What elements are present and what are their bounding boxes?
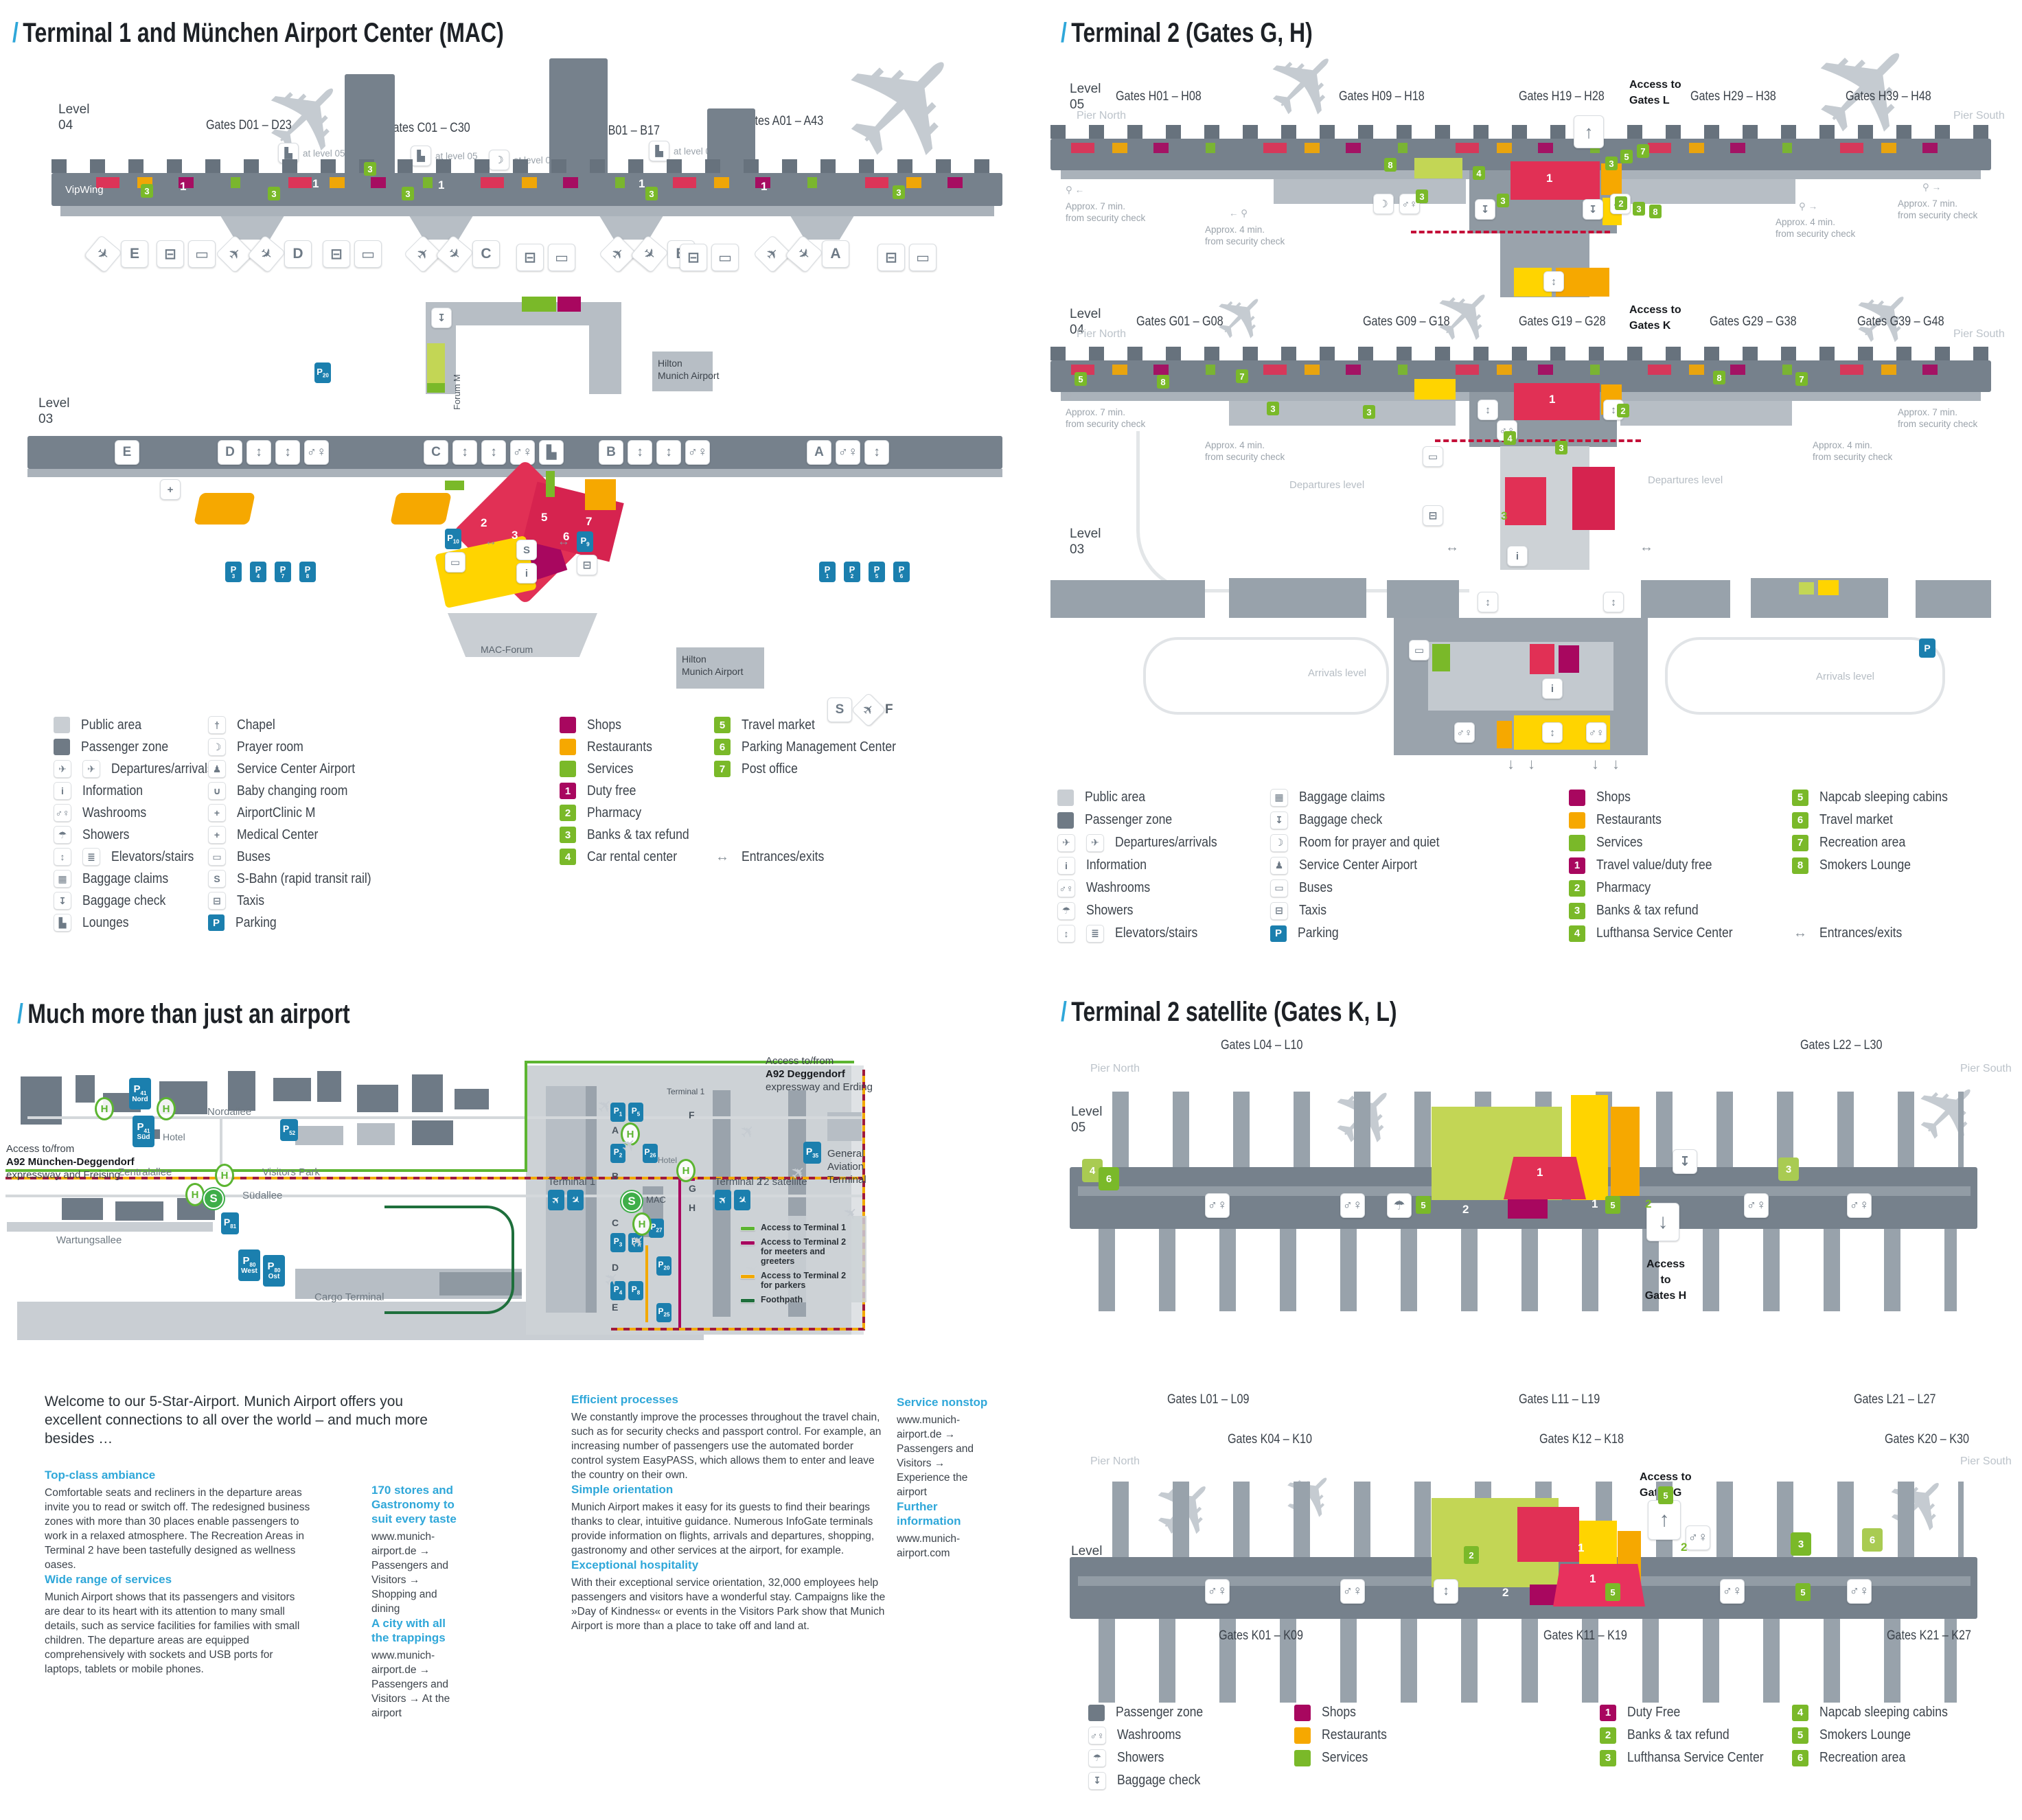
gate-range-label: Gates G09 – G18 <box>1363 314 1450 330</box>
cargo-terminal-label: Cargo Terminal <box>314 1291 384 1303</box>
parking-badge-p10: P10 <box>445 529 461 549</box>
legend-label: Baby changing room <box>237 783 347 799</box>
route-color-swatch <box>740 1226 755 1231</box>
access-up-arrow-icon: ↑ <box>1648 1500 1681 1540</box>
washrooms-icon: ♂♀ <box>1205 1579 1230 1604</box>
building-block <box>273 1078 311 1101</box>
legend-key-icon: ↕ <box>1057 925 1075 943</box>
legend-key-icon <box>54 739 70 755</box>
elevator-icon: ↕ <box>628 440 652 465</box>
area-e-group: ✈E <box>89 240 148 268</box>
washrooms-icon: ♂♀ <box>1686 1525 1710 1550</box>
legend-key-icon: 6 <box>1792 1750 1808 1766</box>
legend-label: Buses <box>237 849 271 865</box>
area-d-group: ✈✈D <box>221 240 312 268</box>
map-badge: 3 <box>893 185 905 199</box>
legend-row: ⊟Taxis <box>1270 899 1458 922</box>
legend-row: ▦Baggage claims <box>1270 786 1458 809</box>
departures-level-label: Departures level <box>1648 474 1723 486</box>
map-badge: 3 <box>1633 202 1645 216</box>
legend-label: Baggage check <box>82 893 165 909</box>
legend-key-icon: ≣ <box>82 848 100 866</box>
sbahn-station-marker: S <box>621 1191 642 1212</box>
legend-row: 5Travel market <box>714 714 917 736</box>
section-letter: D <box>218 440 242 465</box>
bus-icon: ▭ <box>354 240 382 268</box>
walker-icon: ⚲ → <box>1922 181 1941 193</box>
nordallee-label: Nordallee <box>207 1106 251 1118</box>
legend-row: Access to Terminal 1 <box>740 1223 858 1232</box>
text-block: A city with all the trappingswww.munich-… <box>371 1616 461 1720</box>
shops-block <box>1505 477 1546 525</box>
taxi-icon: ⊟ <box>680 244 707 271</box>
legend-row: 1Duty Free <box>1600 1701 1782 1724</box>
map-badge: 3 <box>1791 1532 1811 1556</box>
pier-south-label: Pier South <box>1960 1455 2012 1468</box>
legend-row: Shops <box>1294 1701 1396 1724</box>
legend-label: Shops <box>1596 790 1631 805</box>
building-block <box>412 1074 443 1112</box>
text-paragraph: Munich Airport makes it easy for its gue… <box>571 1500 887 1558</box>
legend-row: ♟Service Center Airport <box>208 758 389 780</box>
legend-label: Smokers Lounge <box>1819 857 1911 873</box>
parkers-route <box>645 1245 648 1322</box>
legend-row: ☂Showers <box>1057 899 1231 922</box>
map-badge: 3 <box>1501 509 1507 523</box>
visitors-park-label: Visitors Park <box>262 1166 320 1178</box>
legend-key-icon: ☽ <box>1270 834 1288 852</box>
legend-row: ☂Showers <box>1088 1747 1215 1769</box>
section-letter: E <box>115 440 139 465</box>
arrivals-icon: ✈ <box>568 1193 582 1207</box>
t1-pier-stem <box>549 58 608 175</box>
terminal1-small-label: Terminal 1 <box>667 1087 704 1096</box>
text-block: Exceptional hospitalityWith their except… <box>571 1558 887 1633</box>
gate-range-label: Gates K12 – K18 <box>1539 1432 1624 1447</box>
bus-icon: ▭ <box>188 240 216 268</box>
information-icon: i <box>516 563 537 584</box>
legend-row: ▭Buses <box>208 846 389 868</box>
t1-legend-col4: 5Travel market6Parking Management Center… <box>714 714 917 780</box>
legend-label: Restaurants <box>587 739 652 755</box>
legend-row: 6Travel market <box>1792 809 1965 831</box>
text-heading: Further information <box>897 1499 989 1528</box>
bus-icon: ▭ <box>548 244 575 271</box>
legend-label: Departures/arrivals <box>111 761 214 777</box>
shops-block <box>1553 1564 1645 1606</box>
legend-row: ↧Baggage check <box>54 890 227 912</box>
text-heading: A city with all the trappings <box>371 1616 461 1645</box>
t2-l03-level-label: Level03 <box>1070 526 1101 557</box>
map-badge: 8 <box>1713 371 1725 384</box>
legend-row: ♂♀Washrooms <box>1088 1724 1215 1747</box>
taxi-bus-group: ⊟▭ <box>516 244 575 271</box>
legend-row: 5Smokers Lounge <box>1792 1724 1965 1747</box>
washrooms-icon: ♂♀ <box>1340 1579 1365 1604</box>
bus-icon: ▭ <box>909 244 937 271</box>
arrivals-icon: ✈ <box>630 235 669 273</box>
foothpath-loop <box>384 1206 514 1314</box>
taxi-icon: ⊟ <box>577 555 597 575</box>
legend-key-icon: 2 <box>1600 1727 1616 1744</box>
services-block <box>427 343 445 383</box>
t1-legend-col3: ShopsRestaurantsServices1Duty free2Pharm… <box>560 714 703 868</box>
map-badge: 1 <box>1549 393 1555 406</box>
legend-label: Showers <box>1086 903 1133 919</box>
map-badge: 3 <box>402 187 414 200</box>
legend-label: Public area <box>1085 790 1145 805</box>
legend-row: ♟Service Center Airport <box>1270 854 1458 877</box>
elevator-icon: ↕ <box>1434 1579 1458 1604</box>
text-heading: Service nonstop <box>897 1395 989 1409</box>
map-badge: 5 <box>1620 150 1633 163</box>
legend-key-icon: i <box>1057 857 1075 875</box>
t2-l05-arm <box>1620 179 1795 204</box>
area-letter: C <box>612 1217 619 1228</box>
legend-key-icon: 3 <box>560 827 576 843</box>
pier-south-label: Pier South <box>1953 328 2005 341</box>
route-color-swatch <box>740 1298 755 1303</box>
legend-label: Chapel <box>237 717 275 733</box>
map-badge: 1 <box>1546 172 1552 185</box>
elevator-icon: ↕ <box>1603 592 1624 612</box>
legend-label: Washrooms <box>82 805 146 821</box>
hilton-label: HiltonMunich Airport <box>658 357 719 382</box>
legend-key-icon: 6 <box>714 739 731 755</box>
security-note: Approx. 4 min.from security check <box>1813 439 1892 463</box>
gate-range-label: Gates K21 – K27 <box>1887 1628 1971 1644</box>
legend-row: SS-Bahn (rapid transit rail) <box>208 868 389 890</box>
area-letter: H <box>689 1202 696 1213</box>
exit-arrow-icon: ↓ <box>1612 755 1620 773</box>
bus-icon: ▭ <box>711 244 739 271</box>
gate-range-label: Gates L04 – L10 <box>1221 1038 1302 1053</box>
map-badge: 3 <box>268 187 280 200</box>
washrooms-icon: ♂♀ <box>1205 1193 1230 1218</box>
mac-label: MAC <box>646 1195 666 1205</box>
map-badge: 5 <box>1605 1583 1620 1601</box>
legend-row: iInformation <box>1057 854 1231 877</box>
legend-key-icon: 2 <box>560 805 576 821</box>
legend-key-icon: 7 <box>714 761 731 777</box>
legend-label: Post office <box>742 761 798 777</box>
legend-row: 8Smokers Lounge <box>1792 854 1965 877</box>
washrooms-icon: ♂♀ <box>685 440 710 465</box>
parking-badge-p41-nord: P41Nord <box>129 1078 151 1109</box>
legend-key-icon: ▦ <box>1270 789 1288 807</box>
legend-key-icon <box>1057 790 1074 806</box>
terminal1-label: Terminal 1 <box>548 1176 595 1188</box>
t2-access-route <box>611 1328 864 1331</box>
elevator-icon: ↕ <box>1478 592 1498 612</box>
legend-key-icon: ✈ <box>82 760 100 778</box>
legend-key-icon: ✈ <box>1086 834 1104 852</box>
gate-range-label: Gates L11 – L19 <box>1519 1392 1600 1407</box>
elevator-icon: ↕ <box>1543 271 1564 292</box>
stairs-icon: ↕ <box>275 440 300 465</box>
restaurants-block <box>1414 379 1456 400</box>
shower-icon: ☂ <box>1387 1193 1412 1218</box>
title-slash-icon: / <box>17 999 23 1029</box>
building-block <box>115 1201 163 1221</box>
legend-key-icon: ↧ <box>1270 811 1288 829</box>
mac-forum-label: MAC-Forum <box>481 644 533 655</box>
shops-block <box>1510 161 1600 200</box>
general-aviation-terminal-label: GeneralAviationTerminal <box>827 1147 866 1186</box>
legend-key-icon: ∪ <box>208 782 226 800</box>
legend-label: Parking Management Center <box>742 739 896 755</box>
legend-row: PParking <box>1270 922 1458 945</box>
map-badge: 3 <box>1416 189 1428 203</box>
information-icon: i <box>1507 546 1528 566</box>
baggage-check-icon: ↧ <box>1475 199 1495 220</box>
t2-legend-col1: Public areaPassenger zone✈✈Departures/ar… <box>1057 786 1231 945</box>
legend-row: ✈✈Departures/arrivals <box>54 758 227 780</box>
t2-l04-retail-strip <box>1071 365 1971 375</box>
taxi-icon: ⊟ <box>1423 505 1443 526</box>
legend-row: 4Car rental center <box>560 846 703 868</box>
legend-row: ↧Baggage check <box>1270 809 1458 831</box>
legend-label: Elevators/stairs <box>111 849 194 865</box>
pier-south-label: Pier South <box>1953 110 2005 122</box>
parking-badge-p5: P5 <box>628 1103 643 1122</box>
shops-block <box>1530 644 1554 674</box>
legend-label: Travel value/duty free <box>1596 857 1712 873</box>
legend-row: Public area <box>54 714 227 736</box>
parking-badge-p41-sued: P41Süd <box>133 1116 154 1147</box>
gate-range-label: Gates G29 – G38 <box>1710 314 1797 330</box>
text-paragraph: www.munich-airport.de → Passengers and V… <box>371 1648 461 1720</box>
map-badge: 3 <box>1497 194 1509 207</box>
taxi-bus-group: ⊟▭ <box>680 244 739 271</box>
map-badge: 1 <box>639 177 645 191</box>
washrooms-icon: ♂♀ <box>510 440 535 465</box>
legend-label: Lufthansa Service Center <box>1627 1750 1764 1766</box>
exit-arrow-icon: ↓ <box>1592 755 1599 773</box>
legend-row: 7Recreation area <box>1792 831 1965 854</box>
legend-key-icon: ↕ <box>54 848 71 866</box>
parking-badge-p81: P81 <box>221 1212 239 1234</box>
entrances-icon: ↔ <box>714 849 731 865</box>
gate-range-label: Gates K04 – K10 <box>1228 1432 1312 1447</box>
arrivals-icon: ✈ <box>247 235 286 273</box>
legend-key-icon <box>1569 812 1585 829</box>
legend-label: Parking <box>1298 925 1339 941</box>
map-badge: 5 <box>1416 1196 1431 1214</box>
text-block: Simple orientationMunich Airport makes i… <box>571 1482 887 1558</box>
legend-row: ▙Lounges <box>54 912 227 934</box>
legend-key-icon: ✈ <box>1057 834 1075 852</box>
map-badge: 2 <box>1645 1197 1651 1211</box>
suedallee-label: Südallee <box>242 1190 282 1201</box>
security-note: Approx. 4 min.from security check <box>1205 439 1285 463</box>
shops-block <box>1504 1157 1586 1199</box>
restaurants-block <box>585 479 616 510</box>
text-heading: Top-class ambiance <box>45 1468 312 1482</box>
legend-label: Restaurants <box>1322 1727 1387 1743</box>
taxi-bus-group: ⊟▭ <box>157 240 216 268</box>
area-letter: C <box>472 240 500 268</box>
legend-key-icon: ↧ <box>1088 1772 1106 1790</box>
legend-label: Taxis <box>1299 903 1326 919</box>
legend-key-icon: 5 <box>1792 790 1808 806</box>
security-note: Approx. 7 min.from security check <box>1898 198 1977 221</box>
legend-key-icon: P <box>1270 925 1287 942</box>
legend-key-icon: i <box>54 782 71 800</box>
t1-waiting-area <box>402 216 481 240</box>
text-paragraph: Comfortable seats and recliners in the d… <box>45 1486 312 1572</box>
arrivals-level-label: Arrivals level <box>1308 667 1366 679</box>
gate-range-label: Gates H39 – H48 <box>1846 89 1931 104</box>
legend-row: Passenger zone <box>1057 809 1231 831</box>
map-badge: 2 <box>481 516 487 530</box>
building-block <box>412 1120 453 1145</box>
legend-label: Banks & tax refund <box>1596 903 1699 919</box>
t1-l04-retail-strip <box>96 177 989 188</box>
elevator-icon: ↕ <box>452 440 477 465</box>
map-badge: 4 <box>1473 166 1485 180</box>
welcome-heading: Welcome to our 5-Star-Airport. Munich Ai… <box>45 1392 457 1448</box>
legend-row: Public area <box>1057 786 1231 809</box>
services-block <box>522 297 556 312</box>
security-note: Approx. 4 min.from security check <box>1776 216 1855 240</box>
legend-key-icon: 5 <box>1792 1727 1808 1744</box>
legend-label: Banks & tax refund <box>1627 1727 1730 1743</box>
legend-key-icon <box>1569 835 1585 851</box>
meeters-route <box>678 1178 681 1328</box>
building-block <box>1229 578 1366 618</box>
services-block <box>427 383 445 393</box>
legend-row: ☽Room for prayer and quiet <box>1270 831 1458 854</box>
legend-key-icon: ↧ <box>54 892 71 910</box>
legend-key-icon: ♂♀ <box>1057 879 1075 897</box>
entrance-arrow-icon: ↔ <box>485 534 497 549</box>
text-column-2: 170 stores and Gastronomy to suit every … <box>371 1483 461 1720</box>
legend-row: ▦Baggage claims <box>54 868 227 890</box>
t1-waiting-area <box>592 216 671 240</box>
legend-key-icon: P <box>208 914 225 931</box>
legend-key-icon: S <box>208 870 226 888</box>
legend-label: Recreation area <box>1819 835 1905 851</box>
text-column-3: Efficient processesWe constantly improve… <box>571 1392 887 1633</box>
legend-label: Showers <box>1117 1750 1164 1766</box>
legend-row: Passenger zone <box>54 736 227 758</box>
security-note: Approx. 7 min.from security check <box>1066 200 1145 224</box>
map-badge: 1 <box>180 180 186 194</box>
legend-row: ☽Prayer room <box>208 736 389 758</box>
legend-label: Pharmacy <box>1596 880 1651 896</box>
arrivals-icon: ✈ <box>435 235 474 273</box>
elevator-icon: ↕ <box>1542 722 1563 743</box>
text-block: 170 stores and Gastronomy to suit every … <box>371 1483 461 1616</box>
legend-row: Services <box>560 758 703 780</box>
vipwing-label: VipWing <box>65 184 104 196</box>
legend-key-icon: ♟ <box>1270 857 1288 875</box>
taxi-icon: ⊟ <box>877 244 905 271</box>
legend-label: Room for prayer and quiet <box>1299 835 1439 851</box>
legend-label: Passenger zone <box>1085 812 1172 828</box>
parking-badge-p35: P35 <box>803 1142 821 1164</box>
security-note: Approx. 7 min.from security check <box>1066 406 1145 430</box>
terminal2-depart-arrive-icons: ✈ ✈ <box>715 1190 750 1210</box>
sat-l05-fingers-bottom <box>1099 1229 1957 1311</box>
gate-range-label: Gates L01 – L09 <box>1167 1392 1249 1407</box>
area-letter: E <box>121 240 148 268</box>
entrance-arrow-icon: ↔ <box>558 534 570 549</box>
legend-key-icon: ☂ <box>54 826 71 844</box>
legend-label: Parking <box>235 915 277 931</box>
building-block <box>317 1071 341 1102</box>
legend-key-icon: ♂♀ <box>54 804 71 822</box>
legend-label: Service Center Airport <box>237 761 355 777</box>
t1-waiting-area <box>213 216 292 240</box>
text-block: Top-class ambianceComfortable seats and … <box>45 1468 312 1572</box>
legend-label: Services <box>587 761 633 777</box>
legend-key-icon: 2 <box>1569 880 1585 897</box>
legend-label: Information <box>1086 857 1147 873</box>
sat-legend-col1: Passenger zone♂♀Washrooms☂Showers↧Baggag… <box>1088 1701 1215 1792</box>
legend-key-icon: 1 <box>1569 857 1585 874</box>
legend-label: Lounges <box>82 915 129 931</box>
hilton-label: HiltonMunich Airport <box>682 653 743 678</box>
map-badge: 3 <box>141 184 153 198</box>
legend-row: ▭Buses <box>1270 877 1458 899</box>
t1-l04-deck <box>60 206 994 216</box>
legend-label: Lufthansa Service Center <box>1596 925 1733 941</box>
legend-label: Baggage check <box>1117 1773 1200 1788</box>
pier-north-label: Pier North <box>1077 110 1126 122</box>
building-block <box>62 1198 103 1220</box>
legend-row: 2Pharmacy <box>560 802 703 824</box>
legend-label: Services <box>1596 835 1642 851</box>
forum-m-label: Forum M <box>452 374 462 410</box>
t1-parking-cluster-right: P1 P2 P5 P6 <box>819 562 910 582</box>
legend-key-icon: ☽ <box>208 738 226 756</box>
legend-key-icon: ▭ <box>208 848 226 866</box>
restaurants-block <box>1611 1107 1640 1196</box>
legend-key-icon: 3 <box>1569 903 1585 919</box>
t2-l04-arm <box>1229 401 1456 426</box>
t1-l04-level-label: Level04 <box>58 102 89 133</box>
at-level-05-badge: ▙at level 05 <box>649 141 716 161</box>
legend-key-icon: 1 <box>1600 1705 1616 1721</box>
map-badge: 5 <box>541 511 547 525</box>
legend-row: Restaurants <box>1569 809 1751 831</box>
a92-access-west-label: Access to/fromA92 München-Deggendorfexpr… <box>6 1142 135 1182</box>
legend-row: ✈✈Departures/arrivals <box>1057 831 1231 854</box>
map-badge: 8 <box>1157 375 1169 389</box>
security-note: Approx. 7 min.from security check <box>1898 406 1977 430</box>
legend-label: Passenger zone <box>81 739 168 755</box>
lounge-icon: ▙ <box>539 440 564 465</box>
area-letter: G <box>689 1183 696 1194</box>
bus-icon: ▭ <box>445 552 466 573</box>
legend-label: Access to Terminal 1 <box>761 1223 846 1232</box>
map-badge: 2 <box>1462 1203 1469 1217</box>
route-color-swatch <box>740 1241 755 1245</box>
hotel-label: Hotel <box>658 1155 677 1165</box>
legend-row: 6Recreation area <box>1792 1747 1965 1769</box>
t1-l04-gate-fingers <box>51 159 1002 173</box>
washrooms-icon: ♂♀ <box>836 440 860 465</box>
text-paragraph: We constantly improve the processes thro… <box>571 1410 887 1482</box>
text-block: Further informationwww.munich-airport.co… <box>897 1499 989 1560</box>
legend-key-icon: ▦ <box>54 870 71 888</box>
t2-l03-center-inner <box>1428 642 1613 711</box>
map-badge: 3 <box>364 162 376 176</box>
building-block <box>455 1089 489 1109</box>
legend-label: Baggage check <box>1299 812 1382 828</box>
